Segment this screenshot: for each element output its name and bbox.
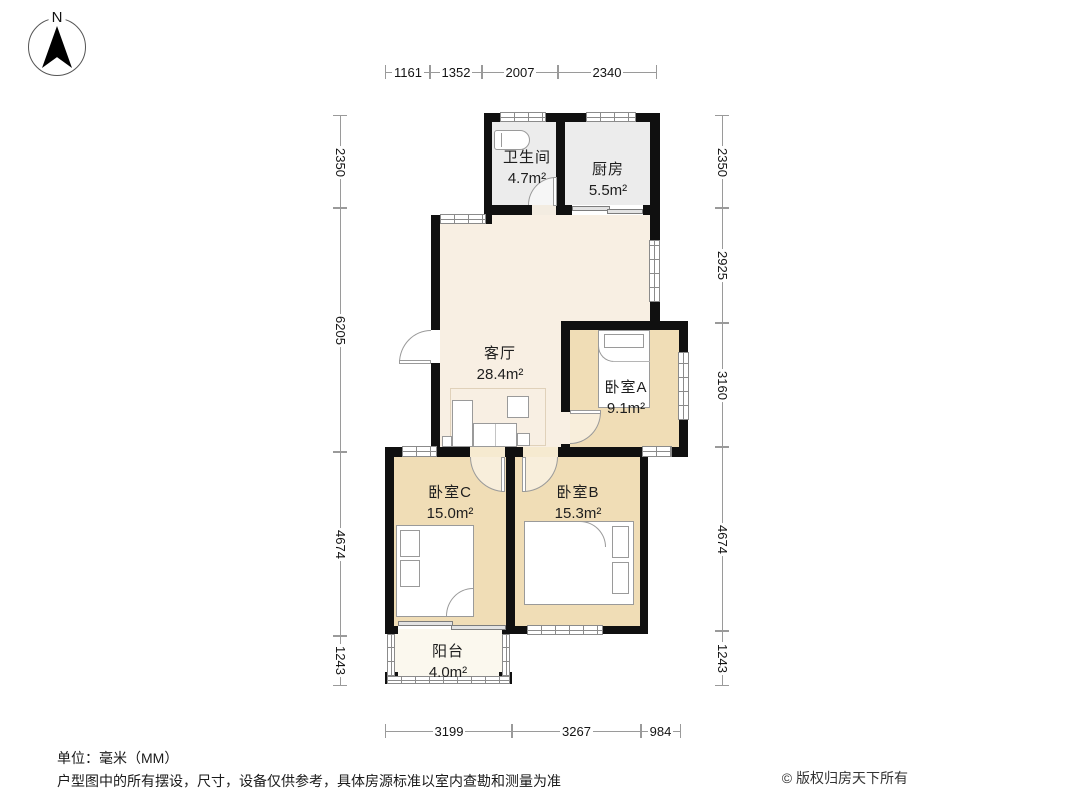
- armchair: [507, 396, 529, 418]
- balcony-railing: [502, 634, 510, 676]
- balcony-railing: [387, 634, 395, 676]
- wall: [505, 447, 523, 457]
- window: [500, 112, 546, 122]
- wall: [515, 626, 527, 634]
- door-leaf: [570, 410, 601, 414]
- doorway-floor: [561, 412, 570, 445]
- sofa-cushion-line: [495, 424, 496, 446]
- wall: [506, 457, 515, 626]
- wall: [643, 205, 660, 215]
- room-label-balcony: 阳台 4.0m²: [429, 640, 467, 681]
- dim-left-segment: 2350: [333, 115, 347, 209]
- disclaimer-text: 户型图中的所有摆设，尺寸，设备仅供参考，具体房源标准以室内查勘和测量为准: [57, 771, 561, 791]
- window: [649, 240, 660, 302]
- wall: [486, 215, 492, 224]
- wall: [679, 321, 688, 352]
- doorway-floor: [532, 205, 556, 215]
- dim-top-segment: 2340: [557, 65, 657, 79]
- wall: [561, 321, 688, 330]
- room-label-living: 客厅 28.4m²: [477, 342, 524, 383]
- dim-right-segment: 2925: [715, 207, 729, 324]
- dim-bottom-segment: 3267: [511, 724, 642, 738]
- window: [440, 214, 486, 224]
- compass-needle-icon: [42, 26, 72, 68]
- wall: [437, 447, 470, 457]
- dim-right-segment: 1243: [715, 630, 729, 686]
- wall: [385, 447, 394, 634]
- room-label-bedroom-c: 卧室C 15.0m²: [427, 481, 474, 522]
- room-label-kitchen: 厨房 5.5m²: [589, 158, 627, 199]
- sofa: [473, 423, 517, 447]
- wall: [556, 205, 572, 215]
- side-table: [517, 433, 530, 446]
- wall: [431, 363, 440, 457]
- pillow: [400, 530, 420, 557]
- dim-left-segment: 4674: [333, 451, 347, 637]
- dim-top-segment: 1161: [385, 65, 431, 79]
- window: [678, 352, 689, 420]
- door-leaf: [399, 360, 431, 364]
- blanket-line: [613, 361, 650, 362]
- sliding-door: [398, 621, 453, 626]
- wall: [558, 447, 642, 457]
- pillow: [400, 560, 420, 587]
- unit-note: 单位：毫米（MM）: [57, 748, 178, 768]
- doorway-floor: [523, 447, 558, 457]
- sliding-door: [451, 625, 506, 630]
- pillow: [612, 562, 629, 594]
- pillow: [612, 526, 629, 558]
- compass-north-label: N: [49, 9, 66, 26]
- doorway-floor: [470, 447, 505, 457]
- door-leaf: [553, 177, 557, 206]
- dim-left-segment: 6205: [333, 207, 347, 453]
- dim-right-segment: 2350: [715, 115, 729, 209]
- dim-right-segment: 4674: [715, 446, 729, 632]
- living-room-floor: [440, 215, 650, 330]
- wall: [556, 122, 565, 215]
- window: [527, 625, 603, 635]
- north-compass: N: [28, 18, 86, 76]
- window: [402, 446, 437, 457]
- sliding-door: [607, 209, 643, 214]
- dim-bottom-segment: 984: [640, 724, 681, 738]
- dim-right-segment: 3160: [715, 322, 729, 448]
- wall: [484, 205, 532, 215]
- wall: [650, 113, 660, 240]
- bathtub-line: [501, 133, 502, 147]
- window: [586, 112, 636, 122]
- floor-plan: N: [0, 0, 1066, 800]
- wall: [640, 457, 648, 634]
- wall: [672, 447, 688, 457]
- door-leaf: [522, 457, 526, 492]
- copyright-text: © 版权归房天下所有: [782, 768, 908, 788]
- dim-bottom-segment: 3199: [385, 724, 513, 738]
- dim-top-segment: 1352: [429, 65, 483, 79]
- sofa: [452, 400, 473, 447]
- wall: [431, 215, 440, 330]
- door-leaf: [501, 457, 505, 492]
- room-label-bedroom-b: 卧室B 15.3m²: [555, 481, 602, 522]
- room-label-bathroom: 卫生间 4.7m²: [503, 146, 551, 187]
- side-table: [442, 436, 452, 447]
- room-label-bedroom-a: 卧室A 9.1m²: [604, 376, 647, 417]
- door-arc: [399, 330, 431, 363]
- wall: [561, 330, 570, 412]
- wall: [603, 626, 648, 634]
- dim-left-segment: 1243: [333, 635, 347, 686]
- window: [642, 446, 672, 457]
- sliding-door: [572, 206, 610, 211]
- wall: [385, 626, 398, 634]
- dim-top-segment: 2007: [481, 65, 559, 79]
